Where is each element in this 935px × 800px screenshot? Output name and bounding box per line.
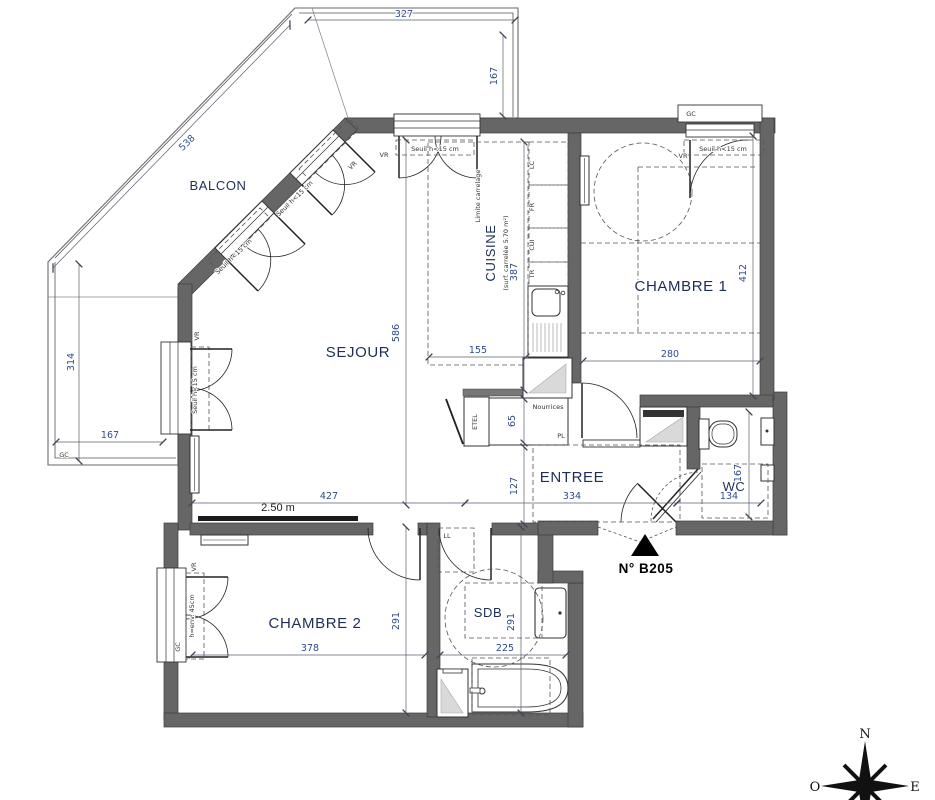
cabinet-sdb (437, 669, 468, 717)
radiator-entree (643, 410, 684, 417)
dim-balcon-left: 314 (66, 353, 77, 371)
cui-label: CUI (528, 239, 536, 250)
dim-cuisine-h: 387 (509, 263, 520, 281)
room-label-entree: ENTREE (540, 469, 604, 486)
compass-west: O (810, 780, 821, 795)
vr-diagonal: VR (347, 159, 359, 171)
door-chambre2 (368, 528, 420, 580)
dim-sejour-w: 427 (320, 491, 338, 502)
shelf-chambre2 (201, 535, 248, 545)
hauteur-allege-label: h=env. 45cm (188, 594, 196, 637)
dim-ch1-h: 412 (738, 264, 749, 282)
cabinet-kitchen-base (523, 358, 572, 398)
wc-basin-icon (761, 418, 774, 445)
entry-marker: N° B205 (619, 534, 674, 576)
gc-balcon: GC (59, 451, 69, 459)
vr-chambre2: VR (190, 562, 198, 571)
floor-plan: 2.50 m BALCON SEJOUR CUISINE (surf. carr… (0, 0, 935, 800)
folding-door-icon (446, 399, 463, 444)
room-label-chambre1: CHAMBRE 1 (635, 278, 728, 295)
unit-label: N° B205 (619, 561, 674, 576)
vr-chambre1: VR (679, 152, 688, 160)
balcony (48, 8, 518, 465)
room-label-sdb: SDB (474, 605, 503, 620)
scale-label: 2.50 m (261, 502, 295, 514)
gc-chambre1: GC (686, 110, 696, 118)
dim-wc-w: 134 (720, 491, 738, 502)
room-label-chambre2: CHAMBRE 2 (269, 615, 362, 632)
dim-nourrices: 65 (507, 415, 518, 427)
dim-entree-w: 334 (563, 491, 581, 502)
room-label-balcon: BALCON (189, 178, 246, 193)
dim-sdb-w: 225 (496, 643, 514, 654)
dim-balcon-bottom: 167 (101, 430, 119, 441)
wc-cistern (761, 465, 774, 481)
compass-rose: N O E (810, 727, 920, 800)
partition-chambre1-entree (583, 440, 640, 447)
ll-label: LL (443, 532, 451, 540)
kitchen-appliances (428, 142, 568, 365)
half-wall-nourrices (463, 389, 523, 396)
vr-sejour: VR (193, 331, 201, 340)
cabinet-entree (640, 407, 687, 446)
seuil-cuisine: Seuil h<15 cm (411, 145, 459, 153)
sdb-basin-icon (535, 588, 566, 638)
tub-faucet-icon (470, 688, 480, 693)
dim-ch2-h: 291 (391, 612, 402, 630)
radiator-chambre1 (580, 156, 589, 205)
dim-sejour-h: 586 (391, 324, 402, 342)
turning-circle-chambre1 (594, 143, 692, 241)
scale-bar: 2.50 m (198, 502, 358, 521)
door-chambre1 (582, 383, 637, 438)
compass-east: E (910, 780, 920, 795)
vr-cuisine: VR (380, 151, 389, 159)
room-label-cuisine: CUISINE (483, 225, 498, 282)
dim-balcon-top: 327 (395, 9, 413, 20)
lc-label: LC (528, 160, 536, 169)
dim-cuisine-w: 155 (469, 345, 487, 356)
dim-ch2-w: 378 (301, 643, 319, 654)
tr-label: TR (528, 269, 536, 279)
door-wc (651, 469, 701, 522)
furniture-chambre1 (581, 167, 760, 333)
entry-triangle-icon (631, 534, 659, 556)
seuil-sejour-left: Seuil h<15 cm (191, 366, 199, 414)
fr-label: FR (528, 202, 536, 211)
radiator-sejour (190, 436, 199, 493)
nourrices-label: Nourrices (533, 403, 565, 411)
room-label-sejour: SEJOUR (326, 344, 390, 361)
dim-wc-h: 167 (733, 464, 744, 482)
limite-carrelage-label: Limite carrelage (474, 170, 482, 223)
toilet-icon (699, 419, 737, 449)
dim-sdb-h: 291 (506, 613, 517, 631)
dim-ch1-w: 280 (661, 349, 679, 360)
bathtub-icon (470, 664, 568, 712)
compass-north: N (859, 727, 870, 742)
etel-label: ETEL (471, 414, 479, 430)
dim-entree-h: 127 (509, 477, 520, 495)
seuil-chambre1: Seuil h<15 cm (699, 145, 747, 153)
compass-star-icon (821, 741, 909, 800)
dim-balcon-right: 167 (489, 67, 500, 85)
gc-chambre2: GC (174, 642, 182, 652)
etel-closet (446, 397, 489, 446)
pl-label: PL (557, 432, 565, 440)
